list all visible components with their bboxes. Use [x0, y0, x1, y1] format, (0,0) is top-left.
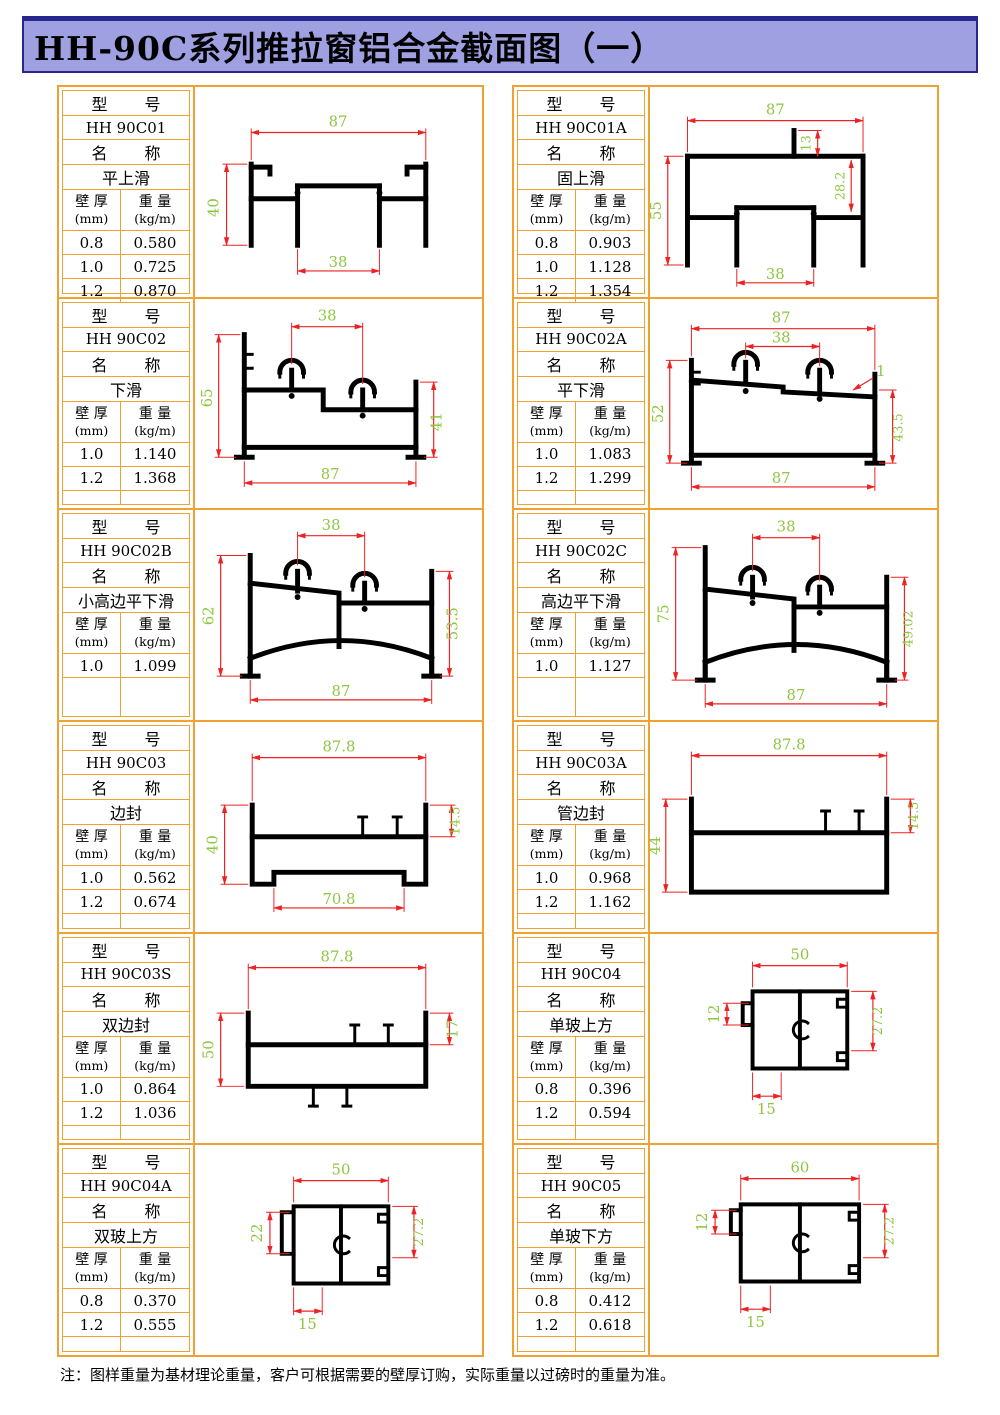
profile-cell: 型 号 HH 90C01A 名 称 固上滑 壁 厚(mm) 重 量(kg/m) … — [514, 87, 937, 299]
column-headers: 壁 厚(mm) 重 量(kg/m) — [518, 613, 644, 654]
weight-value: 0.674 — [121, 890, 189, 913]
weight-value: 0.594 — [576, 1102, 644, 1125]
page-title: HH-90C系列推拉窗铝合金截面图（一） — [24, 22, 664, 70]
thickness-header: 壁 厚(mm) — [518, 402, 576, 442]
model-value: HH 90C02B — [63, 539, 189, 563]
spec-row: 1.20.594 — [518, 1102, 644, 1126]
dim-label-inner: 38 — [772, 329, 791, 346]
wall-thickness-value: 0.8 — [518, 1289, 576, 1312]
spec-row: 0.80.370 — [63, 1289, 189, 1313]
weight-value: 0.412 — [576, 1289, 644, 1312]
model-value: HH 90C04A — [63, 1174, 189, 1198]
model-label: 型 号 — [63, 303, 189, 328]
name-label: 名 称 — [63, 563, 189, 588]
column-headers: 壁 厚(mm) 重 量(kg/m) — [518, 190, 644, 231]
dim-label-top: 87.8 — [323, 739, 356, 756]
spec-rows: 1.00.5621.20.674 — [63, 866, 189, 928]
wall-thickness-value: 1.2 — [63, 1313, 121, 1336]
spec-table: 型 号 HH 90C03A 名 称 管边封 壁 厚(mm) 重 量(kg/m) … — [514, 722, 650, 932]
wall-thickness-value: 0.8 — [63, 1289, 121, 1312]
weight-value: 1.299 — [576, 467, 644, 490]
weight-value: 0.370 — [121, 1289, 189, 1312]
name-label: 名 称 — [63, 140, 189, 165]
spec-row: 1.01.083 — [518, 443, 644, 467]
column-headers: 壁 厚(mm) 重 量(kg/m) — [518, 1248, 644, 1289]
weight-value: 1.099 — [121, 654, 189, 677]
dim-label-bottom: 87 — [787, 687, 806, 704]
spec-table: 型 号 HH 90C02A 名 称 平下滑 壁 厚(mm) 重 量(kg/m) … — [514, 299, 650, 509]
spec-row: 1.01.127 — [518, 654, 644, 678]
section-drawing: 87.8 50 17 — [195, 934, 482, 1144]
spec-row: 1.00.968 — [518, 866, 644, 890]
model-label: 型 号 — [518, 1149, 644, 1174]
thickness-header: 壁 厚(mm) — [518, 613, 576, 653]
weight-header: 重 量(kg/m) — [121, 402, 189, 442]
dimension-lines — [666, 324, 897, 490]
profile-outline — [236, 334, 423, 457]
wall-thickness-value: 1.2 — [63, 1102, 121, 1125]
spec-row: 1.01.140 — [63, 443, 189, 467]
column-headers: 壁 厚(mm) 重 量(kg/m) — [63, 402, 189, 443]
section-drawing: 87 40 38 — [195, 87, 482, 297]
profile-outline — [248, 1013, 426, 1106]
dimension-lines — [215, 322, 438, 486]
name-label: 名 称 — [518, 987, 644, 1012]
weight-value: 1.140 — [121, 443, 189, 466]
wall-thickness-value: 1.0 — [518, 654, 576, 677]
thickness-header: 壁 厚(mm) — [63, 1037, 121, 1077]
dim-label-top: 87 — [329, 114, 348, 131]
weight-header: 重 量(kg/m) — [576, 190, 644, 230]
spec-table: 型 号 HH 90C02 名 称 下滑 壁 厚(mm) 重 量(kg/m) 1.… — [59, 299, 195, 509]
spec-row: 1.20.674 — [63, 890, 189, 914]
spec-row: 1.01.128 — [518, 255, 644, 279]
profile-cell: 型 号 HH 90C02 名 称 下滑 壁 厚(mm) 重 量(kg/m) 1.… — [59, 299, 482, 511]
profile-outline — [697, 548, 894, 681]
model-label: 型 号 — [518, 91, 644, 116]
spec-row: 1.20.618 — [518, 1313, 644, 1337]
weight-value: 1.083 — [576, 443, 644, 466]
spec-row: 1.21.299 — [518, 467, 644, 491]
spec-table: 型 号 HH 90C03 名 称 边封 壁 厚(mm) 重 量(kg/m) 1.… — [59, 722, 195, 932]
weight-value: 0.618 — [576, 1313, 644, 1336]
dim-label-bottom: 38 — [329, 254, 348, 271]
spec-row: 1.21.036 — [63, 1102, 189, 1126]
model-value: HH 90C03S — [63, 963, 189, 987]
spec-table: 型 号 HH 90C01 名 称 平上滑 壁 厚(mm) 重 量(kg/m) 0… — [59, 87, 195, 297]
weight-value: 0.725 — [121, 255, 189, 278]
model-value: HH 90C03A — [518, 751, 644, 775]
model-value: HH 90C04 — [518, 963, 644, 987]
wall-thickness-value: 1.2 — [518, 1102, 576, 1125]
name-value: 固上滑 — [518, 165, 644, 190]
footnote: 注：图样重量为基材理论重量，客户可根据需要的壁厚订购，实际重量以过磅时的重量为准… — [60, 1364, 675, 1385]
model-label: 型 号 — [63, 91, 189, 116]
weight-value: 0.903 — [576, 231, 644, 254]
dim-label-right: 27.2 — [871, 1006, 886, 1035]
spec-rows: 0.80.9031.01.1281.21.354 — [518, 231, 644, 293]
name-value: 边封 — [63, 800, 189, 825]
model-value: HH 90C03 — [63, 751, 189, 775]
wall-thickness-value: 1.0 — [63, 866, 121, 889]
weight-value: 1.036 — [121, 1102, 189, 1125]
wall-thickness-value: 1.0 — [518, 443, 576, 466]
spec-row-filler — [63, 1126, 189, 1140]
spec-row: 1.00.725 — [63, 255, 189, 279]
spec-row-filler — [63, 1337, 189, 1351]
spec-row-filler — [518, 1337, 644, 1351]
weight-value: 0.580 — [121, 231, 189, 254]
weight-header: 重 量(kg/m) — [576, 402, 644, 442]
spec-rows: 0.80.4121.20.618 — [518, 1289, 644, 1351]
section-drawing: 50 12 27.2 15 — [650, 934, 937, 1144]
spec-row: 0.80.412 — [518, 1289, 644, 1313]
spec-rows: 1.01.1401.21.368 — [63, 443, 189, 505]
model-label: 型 号 — [63, 1149, 189, 1174]
wall-thickness-value: 1.2 — [518, 890, 576, 913]
name-value: 小高边平下滑 — [63, 588, 189, 613]
weight-header: 重 量(kg/m) — [576, 825, 644, 865]
profile-cell: 型 号 HH 90C02A 名 称 平下滑 壁 厚(mm) 重 量(kg/m) … — [514, 299, 937, 511]
wall-thickness-value: 1.0 — [518, 866, 576, 889]
spec-rows: 1.01.0831.21.299 — [518, 443, 644, 505]
section-drawing: 38 75 49.02 87 — [650, 510, 937, 720]
spec-rows: 1.01.099 — [63, 654, 189, 716]
name-label: 名 称 — [63, 352, 189, 377]
wall-thickness-value: 0.8 — [518, 231, 576, 254]
dim-label-right: 14.5 — [448, 807, 463, 836]
model-label: 型 号 — [518, 514, 644, 539]
spec-rows: 0.80.5801.00.7251.20.870 — [63, 231, 189, 293]
weight-value: 0.864 — [121, 1078, 189, 1101]
column-headers: 壁 厚(mm) 重 量(kg/m) — [518, 825, 644, 866]
wall-thickness-value: 1.0 — [63, 443, 121, 466]
name-value: 单玻上方 — [518, 1012, 644, 1037]
weight-value: 0.562 — [121, 866, 189, 889]
profile-outline — [252, 805, 426, 884]
spec-rows: 0.80.3701.20.555 — [63, 1289, 189, 1351]
section-drawing: 60 12 27.2 15 — [650, 1145, 937, 1355]
spec-table: 型 号 HH 90C04 名 称 单玻上方 壁 厚(mm) 重 量(kg/m) … — [514, 934, 650, 1144]
model-label: 型 号 — [518, 938, 644, 963]
dim-label-left: 52 — [650, 404, 667, 423]
thickness-header: 壁 厚(mm) — [63, 613, 121, 653]
spec-row: 1.21.162 — [518, 890, 644, 914]
dim-label-top: 87 — [766, 102, 785, 119]
spec-table: 型 号 HH 90C02B 名 称 小高边平下滑 壁 厚(mm) 重 量(kg/… — [59, 510, 195, 720]
section-drawing: 87.8 44 14.5 — [650, 722, 937, 932]
dim-label-bottom: 15 — [298, 1316, 317, 1333]
name-label: 名 称 — [518, 140, 644, 165]
dim-label-right: 27.2 — [412, 1218, 427, 1247]
profile-outline — [743, 991, 848, 1068]
dim-label-left: 44 — [650, 836, 664, 855]
name-label: 名 称 — [63, 1198, 189, 1223]
dimension-lines — [221, 754, 456, 912]
spec-rows: 1.00.9681.21.162 — [518, 866, 644, 928]
spec-table: 型 号 HH 90C05 名 称 单玻下方 壁 厚(mm) 重 量(kg/m) … — [514, 1145, 650, 1355]
profile-cell: 型 号 HH 90C05 名 称 单玻下方 壁 厚(mm) 重 量(kg/m) … — [514, 1145, 937, 1355]
profile-cell: 型 号 HH 90C03A 名 称 管边封 壁 厚(mm) 重 量(kg/m) … — [514, 722, 937, 934]
name-label: 名 称 — [63, 987, 189, 1012]
dim-label-bottom: 38 — [766, 266, 785, 283]
model-label: 型 号 — [518, 726, 644, 751]
dim-label-right: 17 — [444, 1019, 461, 1038]
spec-row: 1.20.555 — [63, 1313, 189, 1337]
dim-label-bottom: 15 — [757, 1101, 776, 1118]
model-label: 型 号 — [63, 514, 189, 539]
profile-outline — [691, 799, 886, 892]
column-headers: 壁 厚(mm) 重 量(kg/m) — [518, 1037, 644, 1078]
dim-label-top: 38 — [777, 519, 796, 536]
weight-header: 重 量(kg/m) — [121, 613, 189, 653]
column-headers: 壁 厚(mm) 重 量(kg/m) — [63, 1037, 189, 1078]
dim-label-right: 53.5 — [444, 608, 461, 641]
dim-label-left: 12 — [706, 1004, 723, 1023]
profile-cell: 型 号 HH 90C03S 名 称 双边封 壁 厚(mm) 重 量(kg/m) … — [59, 934, 482, 1146]
name-value: 平上滑 — [63, 165, 189, 190]
column-headers: 壁 厚(mm) 重 量(kg/m) — [518, 402, 644, 443]
dim-label-left: 40 — [206, 198, 223, 217]
model-label: 型 号 — [63, 938, 189, 963]
dim-label-stub: 13 — [800, 135, 815, 151]
spec-table: 型 号 HH 90C03S 名 称 双边封 壁 厚(mm) 重 量(kg/m) … — [59, 934, 195, 1144]
profile-cell: 型 号 HH 90C01 名 称 平上滑 壁 厚(mm) 重 量(kg/m) 0… — [59, 87, 482, 299]
weight-value: 0.555 — [121, 1313, 189, 1336]
weight-value: 1.368 — [121, 467, 189, 490]
dimension-lines — [664, 117, 863, 287]
profile-outline — [684, 352, 883, 463]
model-value: HH 90C02 — [63, 328, 189, 352]
dim-label-top: 50 — [332, 1162, 351, 1179]
section-drawing: 38 65 41 87 — [195, 299, 482, 509]
thickness-header: 壁 厚(mm) — [518, 1248, 576, 1288]
dimension-lines — [217, 963, 454, 1086]
dim-label-top: 38 — [318, 307, 337, 324]
profile-cell: 型 号 HH 90C02C 名 称 高边平下滑 壁 厚(mm) 重 量(kg/m… — [514, 510, 937, 722]
wall-thickness-value: 1.2 — [63, 890, 121, 913]
title-bar: HH-90C系列推拉窗铝合金截面图（一） — [22, 16, 978, 73]
spec-row-filler — [518, 491, 644, 505]
dim-label-top: 87 — [772, 309, 791, 326]
column-headers: 壁 厚(mm) 重 量(kg/m) — [63, 613, 189, 654]
wall-thickness-value: 1.0 — [63, 1078, 121, 1101]
section-drawing: 87.8 40 14.5 70.8 — [195, 722, 482, 932]
wall-thickness-value: 1.2 — [518, 467, 576, 490]
section-drawing: 50 22 27.2 15 — [195, 1145, 482, 1355]
dim-label-left: 55 — [650, 201, 665, 220]
dim-label-left: 40 — [205, 835, 222, 854]
catalog-page: HH-90C系列推拉窗铝合金截面图（一） 型 号 HH 90C01 名 称 平上… — [0, 0, 1000, 1415]
dim-label-right: 41 — [429, 412, 446, 431]
dim-label-top: 60 — [791, 1160, 810, 1177]
dim-label-right: 43.5 — [891, 413, 906, 442]
thickness-header: 壁 厚(mm) — [63, 190, 121, 230]
section-drawing: 87 38 52 1 43.5 87 — [650, 299, 937, 509]
model-value: HH 90C01A — [518, 116, 644, 140]
spec-row-filler — [518, 678, 644, 716]
weight-value: 1.128 — [576, 255, 644, 278]
spec-row: 0.80.580 — [63, 231, 189, 255]
model-value: HH 90C05 — [518, 1174, 644, 1198]
spec-row: 0.80.903 — [518, 231, 644, 255]
model-label: 型 号 — [63, 726, 189, 751]
dim-label-left: 22 — [249, 1224, 266, 1243]
dim-label-left: 62 — [201, 607, 218, 626]
wall-thickness-value: 0.8 — [518, 1078, 576, 1101]
dim-label-left: 12 — [694, 1213, 711, 1232]
dim-label-right: 49.02 — [901, 611, 916, 648]
thickness-header: 壁 厚(mm) — [63, 1248, 121, 1288]
spec-row: 1.01.099 — [63, 654, 189, 678]
name-label: 名 称 — [518, 352, 644, 377]
column-headers: 壁 厚(mm) 重 量(kg/m) — [63, 190, 189, 231]
name-label: 名 称 — [518, 563, 644, 588]
dim-label-step: 1 — [876, 363, 885, 380]
weight-value: 0.396 — [576, 1078, 644, 1101]
dim-label-left: 75 — [656, 605, 673, 624]
model-value: HH 90C02A — [518, 328, 644, 352]
dim-label-right: 28.2 — [833, 172, 848, 201]
weight-header: 重 量(kg/m) — [576, 1037, 644, 1077]
dim-label-top: 38 — [322, 517, 341, 534]
thickness-header: 壁 厚(mm) — [518, 190, 576, 230]
dim-label-top: 50 — [791, 946, 810, 963]
thickness-header: 壁 厚(mm) — [63, 825, 121, 865]
spec-rows: 1.01.127 — [518, 654, 644, 716]
name-label: 名 称 — [518, 775, 644, 800]
profile-cell: 型 号 HH 90C03 名 称 边封 壁 厚(mm) 重 量(kg/m) 1.… — [59, 722, 482, 934]
name-value: 管边封 — [518, 800, 644, 825]
profile-outline — [731, 1205, 859, 1282]
dim-label-bottom: 70.8 — [323, 891, 356, 908]
dimension-lines — [662, 752, 914, 892]
spec-row: 1.00.562 — [63, 866, 189, 890]
spec-table: 型 号 HH 90C04A 名 称 双玻上方 壁 厚(mm) 重 量(kg/m)… — [59, 1145, 195, 1355]
dim-label-top: 87.8 — [321, 948, 354, 965]
weight-header: 重 量(kg/m) — [121, 1248, 189, 1288]
dim-label-right: 14.5 — [907, 802, 922, 831]
weight-value: 1.162 — [576, 890, 644, 913]
dim-label-bottom: 87 — [321, 466, 340, 483]
wall-thickness-value: 1.0 — [63, 255, 121, 278]
column-headers: 壁 厚(mm) 重 量(kg/m) — [63, 825, 189, 866]
column-headers: 壁 厚(mm) 重 量(kg/m) — [63, 1248, 189, 1289]
spec-row-filler — [63, 678, 189, 716]
dim-label-top: 87.8 — [773, 737, 806, 754]
dim-label-bottom: 87 — [772, 470, 791, 487]
wall-thickness-value: 1.0 — [518, 255, 576, 278]
thickness-header: 壁 厚(mm) — [518, 1037, 576, 1077]
thickness-header: 壁 厚(mm) — [63, 402, 121, 442]
dim-label-right: 27.2 — [883, 1217, 898, 1246]
spec-rows: 1.00.8641.21.036 — [63, 1078, 189, 1140]
weight-value: 1.127 — [576, 654, 644, 677]
weight-header: 重 量(kg/m) — [576, 613, 644, 653]
weight-header: 重 量(kg/m) — [576, 1248, 644, 1288]
dim-label-bottom: 87 — [332, 683, 351, 700]
thickness-header: 壁 厚(mm) — [518, 825, 576, 865]
spec-rows: 0.80.3961.20.594 — [518, 1078, 644, 1140]
weight-header: 重 量(kg/m) — [121, 190, 189, 230]
model-value: HH 90C02C — [518, 539, 644, 563]
wall-thickness-value: 1.2 — [63, 467, 121, 490]
section-drawing: 87 13 55 28.2 38 — [650, 87, 937, 297]
dim-label-bottom: 15 — [746, 1314, 765, 1331]
spec-row: 0.80.396 — [518, 1078, 644, 1102]
profile-cell: 型 号 HH 90C02B 名 称 小高边平下滑 壁 厚(mm) 重 量(kg/… — [59, 510, 482, 722]
spec-table: 型 号 HH 90C02C 名 称 高边平下滑 壁 厚(mm) 重 量(kg/m… — [514, 510, 650, 720]
spec-row-filler — [518, 914, 644, 928]
spec-row-filler — [63, 491, 189, 505]
spec-table: 型 号 HH 90C01A 名 称 固上滑 壁 厚(mm) 重 量(kg/m) … — [514, 87, 650, 297]
grid-column-left: 型 号 HH 90C01 名 称 平上滑 壁 厚(mm) 重 量(kg/m) 0… — [57, 85, 484, 1357]
profile-outline — [242, 556, 439, 677]
name-value: 双边封 — [63, 1012, 189, 1037]
spec-row-filler — [63, 914, 189, 928]
name-value: 高边平下滑 — [518, 588, 644, 613]
section-drawing: 38 62 53.5 87 — [195, 510, 482, 720]
profile-cell: 型 号 HH 90C04A 名 称 双玻上方 壁 厚(mm) 重 量(kg/m)… — [59, 1145, 482, 1355]
dim-label-left: 65 — [199, 388, 216, 407]
weight-value: 0.968 — [576, 866, 644, 889]
name-value: 双玻上方 — [63, 1223, 189, 1248]
model-label: 型 号 — [518, 303, 644, 328]
profile-outline — [282, 1207, 389, 1284]
profile-cell: 型 号 HH 90C04 名 称 单玻上方 壁 厚(mm) 重 量(kg/m) … — [514, 934, 937, 1146]
name-value: 单玻下方 — [518, 1223, 644, 1248]
name-label: 名 称 — [63, 775, 189, 800]
grid-column-right: 型 号 HH 90C01A 名 称 固上滑 壁 厚(mm) 重 量(kg/m) … — [512, 85, 939, 1357]
spec-row: 1.21.368 — [63, 467, 189, 491]
dim-label-left: 50 — [201, 1040, 218, 1059]
weight-header: 重 量(kg/m) — [121, 825, 189, 865]
weight-header: 重 量(kg/m) — [121, 1037, 189, 1077]
model-value: HH 90C01 — [63, 116, 189, 140]
spec-row-filler — [518, 1126, 644, 1140]
name-label: 名 称 — [518, 1198, 644, 1223]
name-value: 下滑 — [63, 377, 189, 402]
spec-row: 1.00.864 — [63, 1078, 189, 1102]
profile-outline — [251, 164, 426, 245]
wall-thickness-value: 1.2 — [518, 1313, 576, 1336]
wall-thickness-value: 1.0 — [63, 654, 121, 677]
wall-thickness-value: 0.8 — [63, 231, 121, 254]
name-value: 平下滑 — [518, 377, 644, 402]
